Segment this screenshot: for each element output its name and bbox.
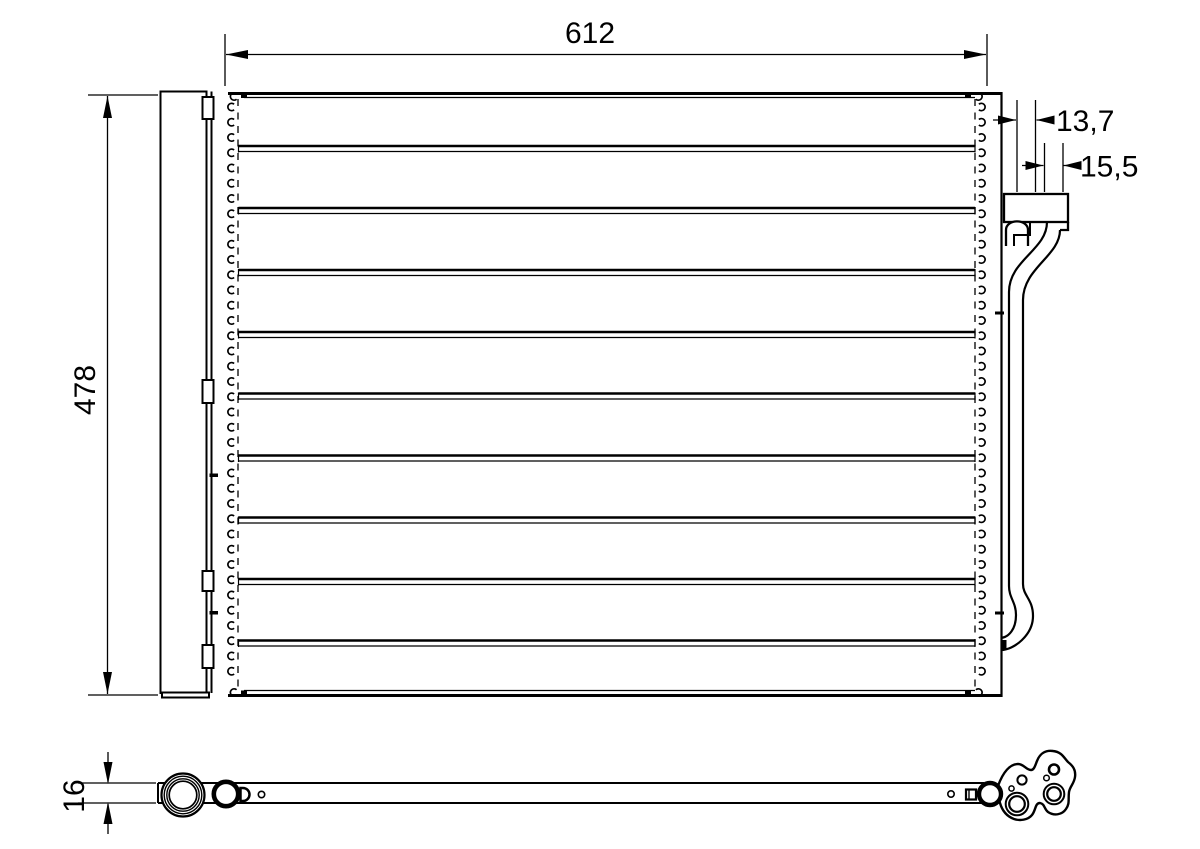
arrowhead (1026, 161, 1044, 170)
arrowhead (1037, 116, 1055, 125)
drawing-canvas: 612 478 13,7 15 (0, 0, 1200, 849)
dimension-label-height: 478 (69, 365, 102, 415)
plate-clip (203, 571, 214, 591)
port-ring (214, 782, 238, 806)
receiver-drier-line (995, 92, 1004, 697)
dimension-label-depth-lower: 15,5 (1080, 151, 1138, 184)
connector-flange (998, 751, 1076, 820)
fin-edge-right (979, 103, 985, 675)
dimension-label-thickness: 16 (58, 779, 91, 812)
dimension-16: 16 (58, 752, 156, 834)
dimension-478: 478 (69, 95, 158, 695)
refrigerant-pipe (1001, 222, 1061, 650)
fin-edge-left (228, 103, 234, 675)
condenser-core (228, 93, 1002, 696)
plate-clip (203, 645, 214, 668)
arrowhead (226, 50, 248, 59)
arrowhead (103, 672, 112, 694)
dimension-612: 612 (225, 17, 987, 86)
bottom-left-fittings (162, 774, 265, 817)
arrowhead (104, 802, 113, 824)
port-ring (979, 783, 1001, 805)
dimension-label-depth-upper: 13,7 (1056, 105, 1114, 138)
side-mounting-plate (161, 92, 219, 698)
plate-tick (210, 611, 219, 615)
dimension-15-5: 15,5 (1022, 143, 1138, 192)
pipe-joint (1001, 640, 1007, 650)
front-view: 612 478 13,7 15 (69, 17, 1138, 698)
condenser-technical-drawing: 612 478 13,7 15 (0, 0, 1200, 849)
arrowhead (104, 762, 113, 784)
bottom-bar (158, 783, 984, 803)
plate-clip (203, 97, 214, 119)
bottom-right-fittings (948, 751, 1075, 820)
small-marker (966, 790, 976, 800)
plate-foot (162, 693, 209, 698)
arrowhead (1064, 161, 1082, 170)
plate-tick (210, 474, 219, 478)
drier-tick (995, 612, 1004, 615)
tube-rows (239, 145, 976, 647)
plate-clip (203, 380, 214, 403)
arrowhead (998, 116, 1016, 125)
d-marker (241, 788, 250, 801)
bottom-view: 16 (58, 751, 1075, 834)
dimension-label-width: 612 (565, 17, 615, 50)
connector-arch (1006, 221, 1028, 246)
drier-tick (995, 312, 1004, 315)
arrowhead (103, 96, 112, 118)
arrowhead (964, 50, 986, 59)
